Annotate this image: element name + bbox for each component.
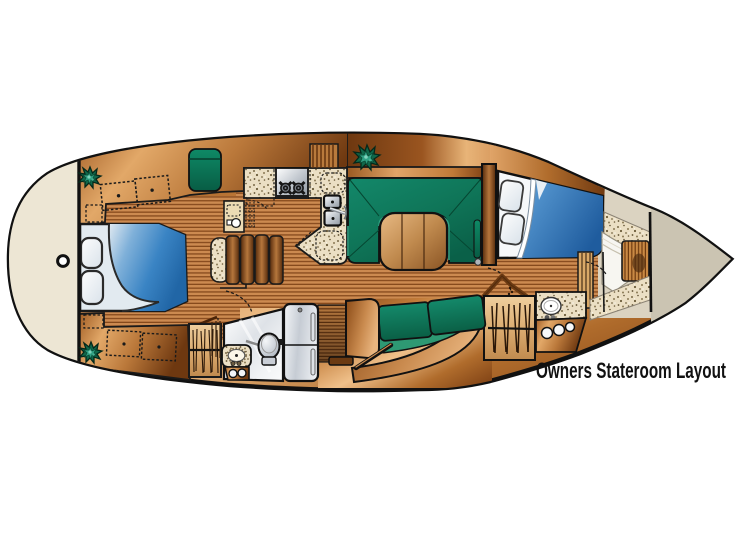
svg-text:Owners Stateroom Layout: Owners Stateroom Layout: [536, 358, 726, 383]
